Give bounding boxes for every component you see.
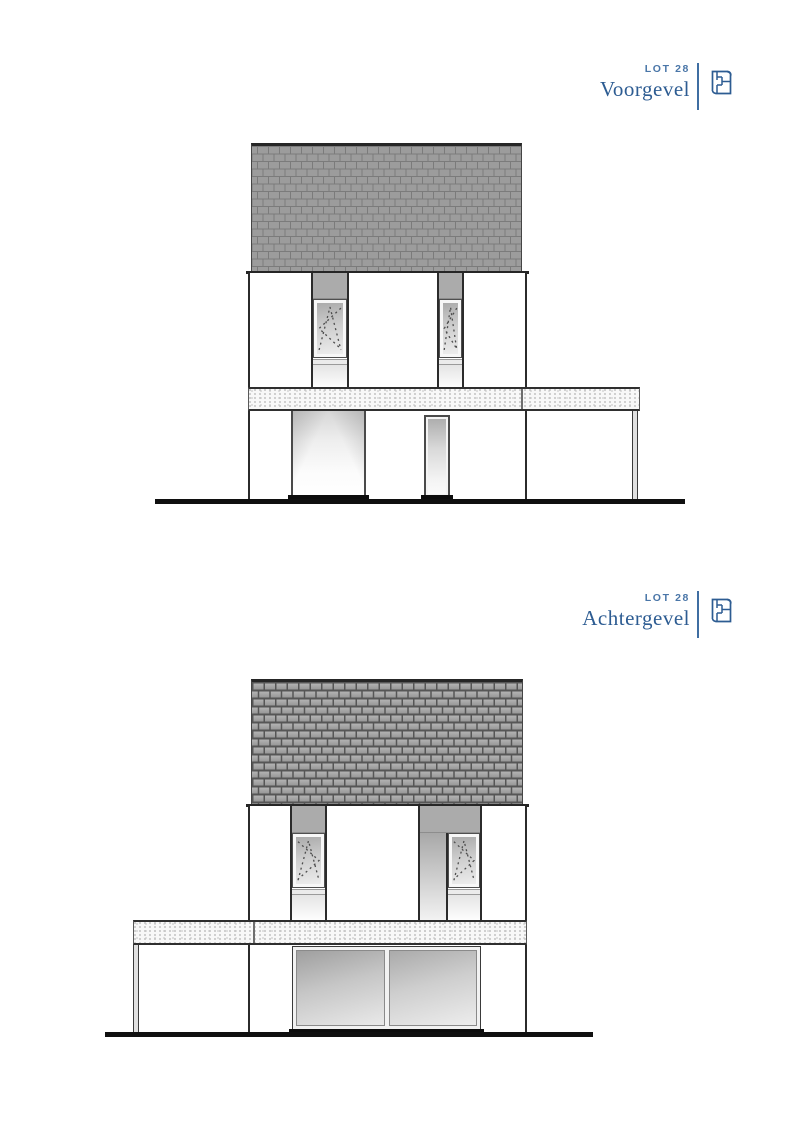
window-recess-panel [439, 273, 462, 299]
window-glass [443, 303, 458, 354]
header-divider [697, 591, 699, 638]
facade-wall-ground [248, 411, 527, 500]
sliding-glass-door [292, 946, 481, 1030]
ground-line [105, 1032, 593, 1037]
tilt-turn-window [448, 833, 480, 888]
garage-opening [291, 411, 366, 496]
lot-label: LOT 28 [430, 592, 690, 604]
window-recess-panel [420, 806, 480, 833]
carport-post [133, 945, 139, 1033]
entry-door [424, 415, 450, 496]
lot-label: LOT 28 [430, 63, 690, 75]
canopy-joint [521, 389, 523, 409]
window-recess-panel [313, 273, 347, 299]
fixed-glass-panel [420, 833, 448, 920]
window-glass [296, 837, 321, 884]
carport-post [632, 411, 638, 500]
window-bay-left [290, 806, 327, 920]
window-spandrel-panel [313, 365, 347, 387]
glass-pane-left [296, 950, 385, 1026]
view-title: Achtergevel [430, 607, 690, 629]
canopy-slab [133, 920, 527, 945]
plan-sheet: LOT 28 Voorgevel [0, 0, 800, 1132]
window-glass [317, 303, 343, 354]
roof-tile-area [251, 679, 523, 805]
view-header-achtergevel: LOT 28 Achtergevel [430, 592, 690, 629]
window-spandrel-panel [448, 895, 480, 920]
tilt-turn-window [313, 299, 347, 358]
window-glass [452, 837, 476, 884]
glass-pane-right [389, 950, 478, 1026]
window-bay-right [418, 806, 482, 920]
window-subcolumn [448, 833, 480, 920]
floorplan-icon [708, 68, 735, 97]
view-title: Voorgevel [430, 78, 690, 100]
window-unit-row [420, 833, 480, 920]
header-divider [697, 63, 699, 110]
window-bay-left [311, 273, 349, 387]
tilt-turn-window [439, 299, 462, 358]
view-header-voorgevel: LOT 28 Voorgevel [430, 63, 690, 100]
floorplan-icon [708, 596, 735, 625]
window-spandrel-panel [439, 365, 462, 387]
roof-tile-area [251, 143, 522, 273]
ground-line [155, 499, 685, 504]
window-recess-panel [292, 806, 325, 833]
window-spandrel-panel [292, 895, 325, 920]
canopy-slab [248, 387, 640, 411]
window-bay-right [437, 273, 464, 387]
canopy-joint [253, 922, 255, 943]
tilt-turn-window [292, 833, 325, 888]
facade-wall-upper [248, 273, 527, 387]
